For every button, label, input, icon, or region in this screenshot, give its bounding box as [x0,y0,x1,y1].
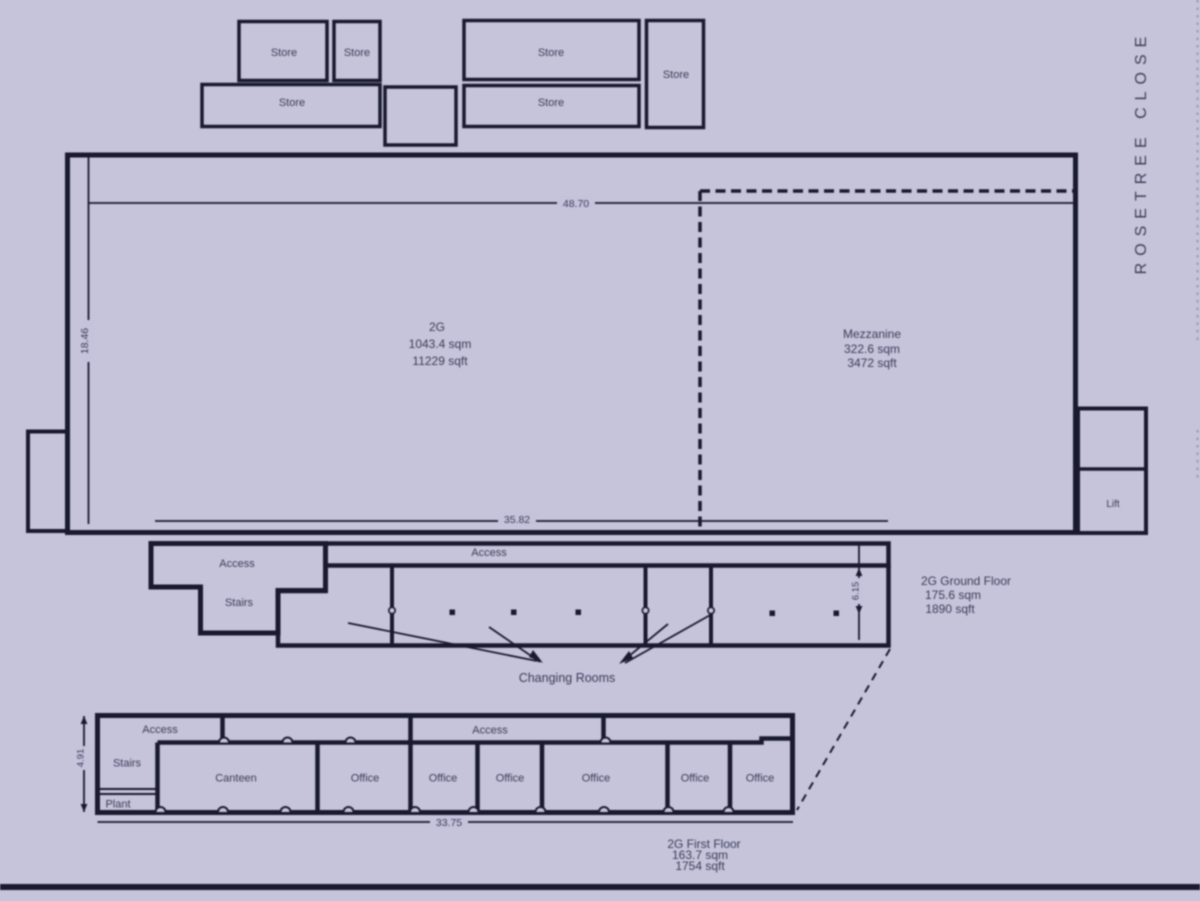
svg-text:Access: Access [471,547,507,559]
svg-text:1890 sqft: 1890 sqft [925,602,975,616]
svg-text:33.75: 33.75 [436,817,462,829]
svg-text:Store: Store [663,69,689,81]
svg-text:Mezzanine: Mezzanine [843,327,901,341]
svg-text:Office: Office [429,773,458,785]
svg-text:4.91: 4.91 [76,749,87,768]
svg-text:Store: Store [279,97,305,109]
svg-text:18.46: 18.46 [79,328,91,354]
svg-text:Store: Store [344,47,370,59]
svg-text:11229 sqft: 11229 sqft [412,354,468,368]
svg-text:Store: Store [271,47,297,59]
svg-text:175.6 sqm: 175.6 sqm [925,588,981,602]
svg-text:Access: Access [219,558,255,570]
svg-text:Plant: Plant [105,799,130,811]
svg-text:Stairs: Stairs [113,758,142,770]
svg-text:Access: Access [142,724,178,736]
svg-text:Store: Store [538,97,564,109]
svg-text:35.82: 35.82 [504,514,530,526]
svg-text:Office: Office [746,773,775,785]
svg-text:Changing Rooms: Changing Rooms [519,671,616,685]
svg-text:1043.4 sqm: 1043.4 sqm [409,337,472,351]
svg-text:6.15: 6.15 [851,582,862,601]
svg-text:Access: Access [472,725,508,737]
svg-text:ROSETREE CLOSE: ROSETREE CLOSE [1133,30,1150,275]
svg-text:Office: Office [351,773,380,785]
svg-text:Office: Office [681,773,710,785]
svg-text:Stairs: Stairs [225,597,254,609]
svg-text:Lift: Lift [1106,499,1120,510]
svg-text:3472 sqft: 3472 sqft [847,356,897,370]
svg-text:Office: Office [496,773,525,785]
svg-text:2G: 2G [429,320,445,334]
svg-text:Canteen: Canteen [215,773,257,785]
svg-text:2G Ground Floor: 2G Ground Floor [921,574,1011,588]
svg-text:322.6 sqm: 322.6 sqm [844,342,900,356]
svg-text:48.70: 48.70 [563,198,589,210]
svg-text:Office: Office [582,773,611,785]
svg-text:Store: Store [538,47,564,59]
svg-text:1754 sqft: 1754 sqft [675,859,725,873]
